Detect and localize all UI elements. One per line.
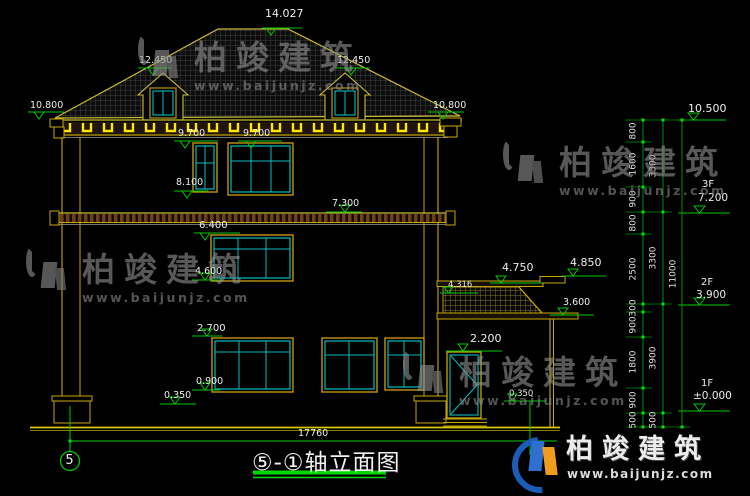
dim-seg: 800 — [630, 214, 639, 231]
dim-seg: 2500 — [630, 258, 639, 281]
elevation-label-post-cap: 4.850 — [570, 257, 602, 268]
elevation-label-dormer-left: 12.450 — [139, 56, 172, 66]
dim-seg: 1600 — [630, 153, 639, 176]
floor-label-2f: 2F — [701, 278, 713, 288]
elevation-label-porch-slab: 3.600 — [563, 298, 590, 308]
elevation-label-eave-left: 10.800 — [30, 101, 63, 111]
elevation-label-apex: 14.027 — [265, 8, 304, 19]
logo-url: www.baijunjz.com — [567, 467, 714, 481]
elevation-label-win3-head-left: 9.700 — [178, 129, 205, 139]
elevation-label-plinth-right: 0.350 — [509, 390, 533, 399]
elevation-label-band: 7.300 — [332, 199, 359, 209]
dim-seg: 800 — [630, 122, 639, 139]
dim-subtotal: 500 — [650, 411, 659, 428]
logo-brand: 柏竣建筑 — [566, 435, 710, 465]
elevation-label-win2-head: 6.400 — [199, 221, 228, 231]
elevation-label-door-head: 2.200 — [470, 333, 502, 344]
dim-seg: 300 — [630, 299, 639, 316]
dim-total-height: 11000 — [670, 260, 679, 289]
dim-total-width: 17760 — [298, 429, 328, 439]
floor-elev-3f: 7.200 — [698, 193, 728, 204]
elevation-label-win1-sill: 0.900 — [196, 377, 223, 387]
floor-label-1f: 1F — [701, 379, 713, 389]
floor-label-3f: 3F — [702, 180, 714, 190]
floor-elev-2f: 3.900 — [696, 290, 726, 301]
axis-bubble-5: 5 — [60, 451, 79, 470]
entrance-porch — [437, 277, 578, 428]
dim-seg: 900 — [630, 316, 639, 333]
dim-seg: 900 — [630, 391, 639, 408]
company-logo: 柏竣建筑 www.baijunjz.com — [506, 433, 746, 491]
elevation-label-win2-sill: 4.600 — [195, 267, 222, 277]
dim-seg: 500 — [630, 411, 639, 428]
roof — [55, 29, 460, 118]
elevation-label-rail-mid: 4.316 — [448, 281, 472, 290]
elevation-label-dormer-right: 12.450 — [337, 56, 370, 66]
floor-band — [50, 211, 455, 225]
floor-elev-1f: ±0.000 — [693, 391, 732, 402]
drawing-title: ⑤-①轴立面图 — [252, 443, 401, 477]
elevation-label-win3-head-right: 9.700 — [243, 129, 270, 139]
elevation-label-plinth-left: 0.350 — [164, 391, 191, 401]
elevation-label-eave-right: 10.800 — [433, 101, 466, 111]
dim-subtotal: 3300 — [650, 247, 659, 270]
dim-subtotal: 3900 — [650, 347, 659, 370]
dim-subtotal: 3300 — [650, 155, 659, 178]
cad-elevation-drawing: 14.027 12.450 12.450 10.800 10.800 9.700… — [0, 0, 750, 496]
windows — [193, 143, 424, 392]
elevation-label-win3-sill: 8.100 — [176, 178, 203, 188]
elevation-label-win1-head: 2.700 — [197, 324, 226, 334]
elevation-label-top-right: 10.500 — [688, 103, 727, 114]
elevation-label-rail-top: 4.750 — [502, 262, 534, 273]
dim-seg: 900 — [630, 190, 639, 207]
dim-seg: 1800 — [630, 351, 639, 374]
